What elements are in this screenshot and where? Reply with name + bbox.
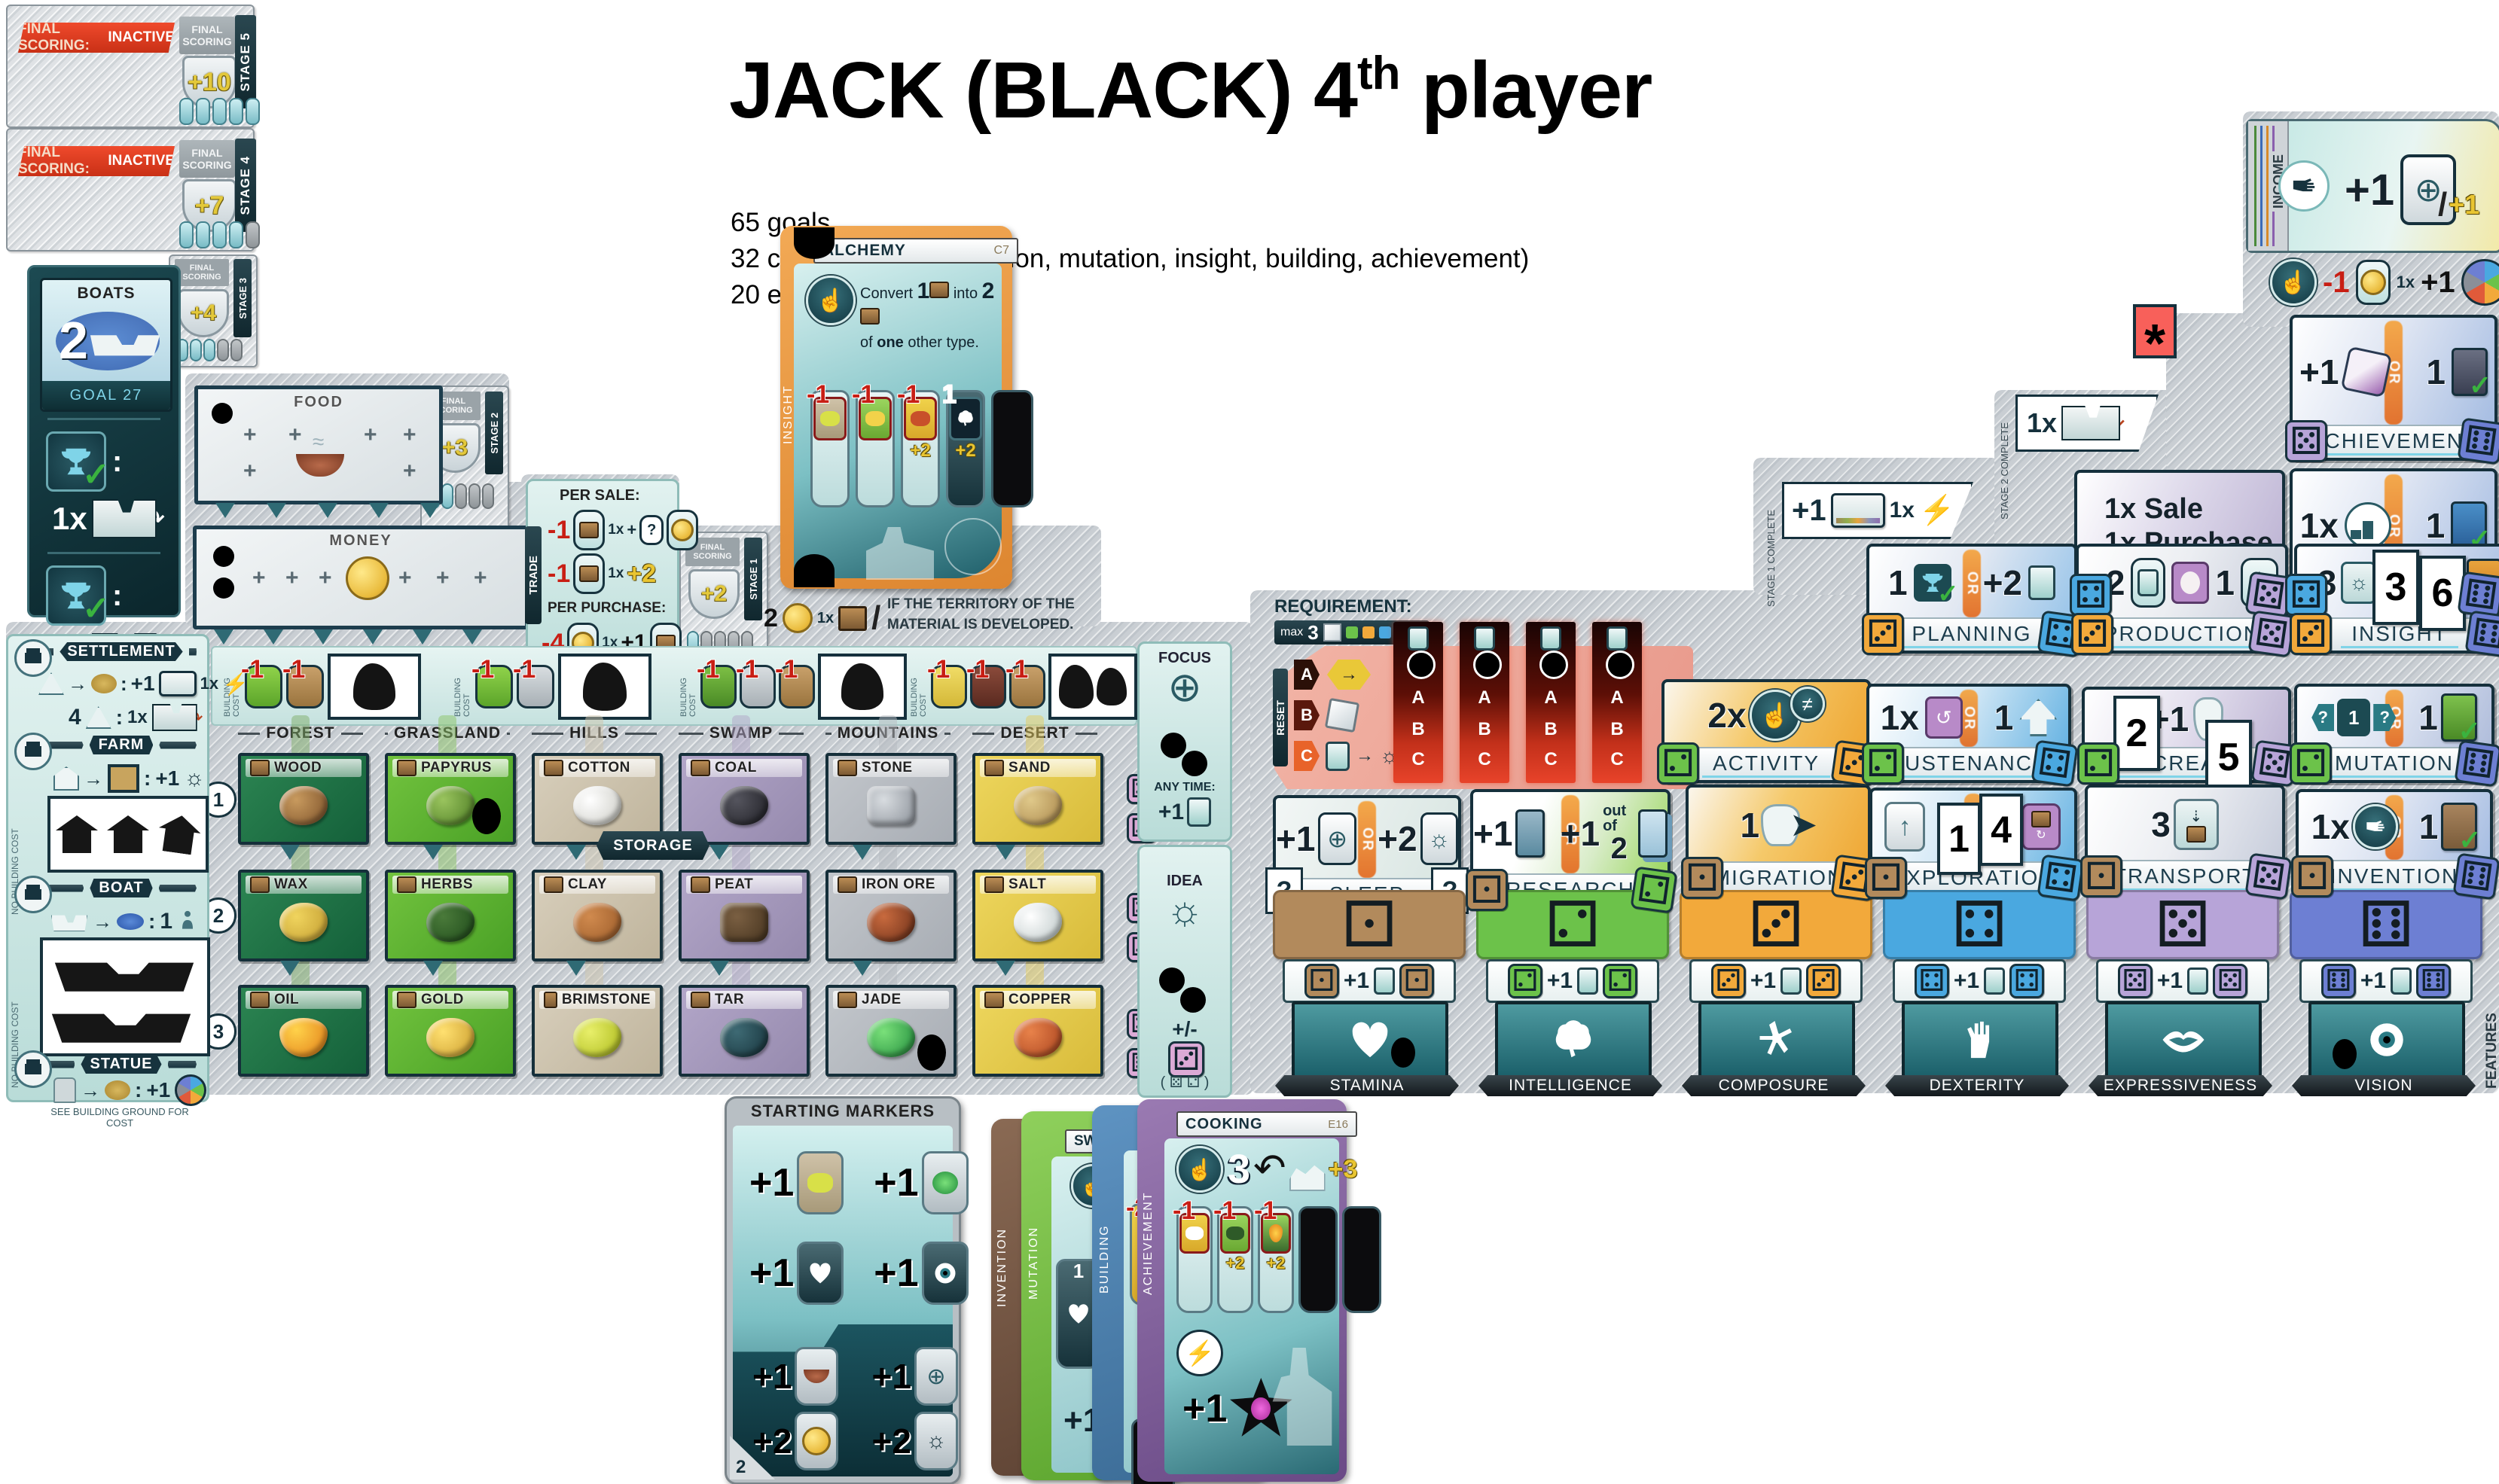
plus-slot: + bbox=[403, 459, 416, 484]
wire bbox=[2254, 126, 2256, 246]
focus-anytime-gain: +1 bbox=[1140, 797, 1230, 827]
die-swap-glyphs: ( ⚄ ⚁ ) bbox=[1140, 1073, 1230, 1092]
die-tan-1[interactable]: ⚀ bbox=[2080, 855, 2122, 897]
procreation-marker-box-2[interactable]: 2 bbox=[2113, 696, 2160, 771]
settlement-header: Settlement bbox=[46, 642, 197, 661]
arrow-icon: → bbox=[93, 910, 112, 934]
capsule-salt[interactable]: -1 bbox=[1176, 1206, 1213, 1313]
house-token-black bbox=[56, 815, 98, 853]
money-label: Money bbox=[197, 532, 525, 550]
bucket-icon bbox=[1326, 742, 1350, 771]
attr-plate-stamina[interactable]: ⚀ bbox=[1273, 890, 1466, 959]
card-alchemy[interactable]: Alchemy C7 Insight ☝ Convert 1 into 2 of… bbox=[780, 226, 1012, 589]
die-periwinkle-6[interactable]: ⚅ bbox=[2454, 739, 2499, 787]
storage-banner: Storage bbox=[597, 831, 709, 860]
resource-tile-iron-ore[interactable]: Iron Ore bbox=[825, 870, 957, 961]
chip-green bbox=[1346, 626, 1358, 638]
action-sustenance[interactable]: OR 1x ↺ 1 Sustenance ⚁ ⚃ bbox=[1866, 684, 2071, 783]
resource-tile-cotton[interactable]: Cotton bbox=[532, 753, 663, 845]
resource-illustration bbox=[867, 786, 915, 825]
trophy-check-icon: ✓ bbox=[46, 565, 106, 626]
requirement-row-a: A → bbox=[1294, 660, 1371, 690]
player-disc-black[interactable] bbox=[1606, 651, 1634, 679]
crate-icon bbox=[929, 282, 949, 298]
chip-blue bbox=[1379, 626, 1391, 638]
card-type-tab: Mutation bbox=[1027, 1172, 1041, 1300]
crate-icon bbox=[544, 992, 557, 1008]
capsule-empty-black[interactable] bbox=[991, 390, 1033, 507]
attr-plate-vision[interactable]: ⚅ bbox=[2290, 890, 2482, 959]
player-disc-black[interactable] bbox=[1407, 651, 1436, 679]
bucket-icon bbox=[2391, 967, 2412, 995]
card-check-icon: ✓ bbox=[2441, 693, 2477, 742]
resource-illustration bbox=[426, 1018, 474, 1057]
die-periwinkle-6[interactable]: ⚅ bbox=[2464, 610, 2499, 657]
plus-slot: + bbox=[364, 422, 377, 448]
house-token-black bbox=[107, 815, 149, 853]
focus-capsule: ⊕ bbox=[914, 1347, 958, 1406]
resource-tile-tar[interactable]: Tar bbox=[679, 985, 810, 1077]
pouch-icon: ↺ bbox=[1925, 696, 1963, 739]
card-check-icon: ✓ bbox=[2441, 803, 2477, 851]
building-pieces-box[interactable] bbox=[558, 654, 651, 720]
stage1-complete-tab: Stage 1 complete +1 1x ⚡ bbox=[1767, 482, 1973, 539]
idea-marker-black[interactable] bbox=[1180, 987, 1206, 1013]
exploration-marker-box-4[interactable]: 4 bbox=[1979, 794, 2023, 866]
stage3-points-shield: +4 bbox=[178, 289, 229, 337]
resource-illustration bbox=[1014, 786, 1062, 825]
die-periwinkle-6[interactable]: ⚅ bbox=[2452, 852, 2499, 900]
die-blue-4[interactable]: ⚃ bbox=[2285, 574, 2327, 616]
card-starting-markers[interactable]: Starting markers +1 +1 +1 +1 +1 +1⊕ +2 +… bbox=[725, 1096, 961, 1484]
question-chip: ? bbox=[2311, 704, 2334, 731]
pink-modifier-die: ⚂ bbox=[1168, 1041, 1204, 1077]
red-asterisk-marker[interactable]: * bbox=[2133, 304, 2177, 358]
divider bbox=[47, 552, 160, 554]
goal-card-boats[interactable]: Boats 2 Goal 27 bbox=[40, 278, 172, 412]
action-mutation[interactable]: OR ? 1 ? 1 ✓ Mutation ⚁ ⚅ bbox=[2294, 684, 2494, 783]
mini-die: ⚅ bbox=[2321, 964, 2356, 998]
crate-icon bbox=[544, 876, 563, 893]
mini-die: ⚃ bbox=[1915, 964, 1949, 998]
capsule-gold[interactable]: -1 bbox=[856, 390, 895, 507]
goal-panel: Boats 2 Goal 27 ✓ : 1x ↷ ✓ : bbox=[27, 265, 181, 617]
resource-tile-clay[interactable]: Clay bbox=[532, 870, 663, 961]
goal-card-footer: Goal 27 bbox=[42, 381, 170, 410]
arrow-icon: → bbox=[1356, 745, 1374, 766]
capsule-wax[interactable]: -1 bbox=[810, 390, 850, 507]
wax-blob bbox=[820, 411, 840, 426]
crate-icon bbox=[579, 565, 599, 582]
final-scoring-label: Final scoring bbox=[179, 17, 235, 54]
resource-tile-wax[interactable]: Wax bbox=[238, 870, 369, 961]
capsule-copper[interactable]: -1+2 bbox=[901, 390, 940, 507]
reset-tab[interactable]: Reset bbox=[1273, 669, 1288, 766]
requirement-column[interactable]: A B C bbox=[1592, 622, 1642, 783]
stage4-markers[interactable] bbox=[179, 221, 260, 248]
die-periwinkle-6[interactable]: ⚅ bbox=[2457, 417, 2499, 465]
stage1-complete-badge: +1 1x ⚡ bbox=[1782, 482, 1973, 539]
die-blue-4[interactable]: ⚃ bbox=[2037, 854, 2084, 901]
action-achievement[interactable]: OR +1 1 ✓ Achievement ⚄ ⚅ bbox=[2290, 315, 2497, 461]
energy-circle-icon: ⚡ bbox=[1176, 1330, 1223, 1376]
resource-illustration bbox=[426, 786, 474, 825]
out-of-label: out of2 bbox=[1603, 803, 1635, 864]
mini-die: ⚁ bbox=[1603, 964, 1637, 998]
die-blue-4[interactable]: ⚃ bbox=[2070, 574, 2112, 616]
wax-capsule bbox=[797, 1151, 844, 1214]
player-disc-black[interactable] bbox=[1391, 1038, 1415, 1068]
crate-icon bbox=[250, 992, 270, 1008]
attr-slot-dexterity[interactable]: ⚃ +1 ⚃ bbox=[1893, 959, 2066, 1003]
worker-icon bbox=[177, 910, 198, 934]
action-transport[interactable]: 3 ⇣ Transport ⚀ ⚄ bbox=[2085, 785, 2285, 896]
bucket-icon bbox=[1984, 967, 2005, 995]
action-activity[interactable]: 2x ☝ ≠ Activity ⚁ ⚂ bbox=[1661, 679, 1871, 783]
resource-tile-salt[interactable]: Salt bbox=[972, 870, 1103, 961]
crate-icon bbox=[984, 760, 1004, 776]
focus-marker-black[interactable] bbox=[1182, 751, 1207, 776]
capsule-oil[interactable]: -1+2 bbox=[1258, 1206, 1294, 1313]
building-cost-group: Building cost -1 -1 bbox=[453, 654, 651, 720]
resource-illustration bbox=[279, 1018, 328, 1057]
income-card-icon bbox=[1831, 493, 1885, 528]
cube-icon bbox=[1325, 698, 1359, 733]
goal-card-title: Boats bbox=[42, 285, 170, 303]
coin-icon bbox=[783, 603, 813, 633]
stage-3-tile[interactable]: Final scoring +4 Stage 3 bbox=[169, 254, 258, 367]
boat-flip-icon bbox=[92, 499, 157, 538]
divider bbox=[47, 418, 160, 420]
food-label: Food bbox=[198, 394, 439, 411]
card-cooking[interactable]: Cooking E16 Achievement ☝ 3 ↶ +3 -1 -1+2… bbox=[1137, 1099, 1347, 1482]
mini-stripe bbox=[1836, 518, 1880, 523]
focus-marker-black[interactable] bbox=[1161, 733, 1186, 758]
plus-slot: + bbox=[403, 422, 416, 448]
card-effect-text: Convert 1 into 2 of one other type. bbox=[860, 274, 1003, 354]
mini-die: ⚄ bbox=[2213, 964, 2247, 998]
idea-shield-icon: ☼ bbox=[1420, 812, 1458, 865]
goal-reward-gain: 1x ↷ bbox=[52, 499, 165, 538]
resource-tile-coal[interactable]: Coal bbox=[679, 753, 810, 845]
mini-die: ⚁ bbox=[1508, 964, 1542, 998]
title-ordinal: th bbox=[1357, 47, 1400, 99]
building-pieces-box[interactable] bbox=[1048, 654, 1137, 720]
crate-icon bbox=[838, 606, 867, 631]
brick-icon bbox=[14, 1050, 52, 1088]
wire bbox=[2260, 126, 2263, 246]
energy-icon: ⚡ bbox=[222, 672, 249, 696]
card-type-tab: Building bbox=[1098, 1166, 1112, 1294]
attr-name-expressiveness: Expressiveness bbox=[2089, 1075, 2272, 1096]
attr-name-stamina: Stamina bbox=[1275, 1075, 1459, 1096]
procreation-marker-box-5[interactable]: 5 bbox=[2205, 720, 2252, 795]
crate-icon bbox=[838, 876, 857, 893]
attr-plate-expressiveness[interactable]: ⚄ bbox=[2086, 890, 2279, 959]
building-pieces-box[interactable] bbox=[328, 654, 421, 720]
marker-row: +1 +1 bbox=[749, 1151, 969, 1214]
focus-icon: ⊕ bbox=[1140, 667, 1230, 708]
die-green-2[interactable]: ⚁ bbox=[1630, 866, 1677, 913]
die-lavender-5[interactable]: ⚄ bbox=[2244, 852, 2292, 900]
insight-marker-box-6[interactable]: 6 bbox=[2419, 556, 2466, 631]
money-marker-black[interactable] bbox=[213, 546, 234, 567]
boat-flip-icon bbox=[2061, 406, 2120, 440]
capsule-brain[interactable]: 1+2 bbox=[946, 390, 985, 507]
brick-icon bbox=[14, 733, 52, 770]
crate-icon bbox=[691, 876, 710, 893]
boat-token-black bbox=[52, 951, 197, 993]
stage3-markers[interactable] bbox=[176, 339, 243, 361]
attr-plate-dexterity[interactable]: ⚃ bbox=[1883, 890, 2076, 959]
idea-marker-black[interactable] bbox=[1159, 967, 1185, 993]
row-arrows bbox=[280, 961, 1015, 976]
die-green-2[interactable]: ⚁ bbox=[1862, 742, 1904, 785]
resource-tile-stone[interactable]: Stone bbox=[825, 753, 957, 845]
crate-icon bbox=[544, 760, 563, 776]
stage1-points-shield: +2 bbox=[688, 569, 740, 619]
plus-slot: + bbox=[398, 565, 412, 591]
gold-ground-icon bbox=[91, 674, 117, 693]
bucket-icon bbox=[2187, 967, 2208, 995]
attr-name-dexterity: Dexterity bbox=[1885, 1075, 2069, 1096]
cube-icon bbox=[1323, 623, 1341, 641]
food-track: Food ++++ ++ ≈ bbox=[194, 385, 443, 504]
crate-icon bbox=[250, 876, 270, 893]
arrow-icon: ➤ bbox=[1791, 808, 1817, 843]
boat-token-black bbox=[49, 1002, 194, 1044]
die-green-2[interactable]: ⚁ bbox=[2077, 742, 2119, 785]
player-disc-black[interactable] bbox=[2333, 1039, 2357, 1069]
crate-icon bbox=[691, 760, 710, 776]
resource-tile-wood[interactable]: Wood bbox=[238, 753, 369, 845]
starting-markers-title: Starting markers bbox=[727, 1099, 959, 1124]
die-tan-1[interactable]: ⚀ bbox=[1865, 857, 1907, 899]
bucket-icon bbox=[1606, 626, 1628, 651]
income-color-stripe bbox=[2287, 239, 2499, 251]
settlement-row-2: 4 : 1x ↷ bbox=[69, 704, 203, 731]
bucket-icon bbox=[1408, 626, 1429, 651]
attr-slot-stamina[interactable]: ⚀ +1 ⚀ bbox=[1283, 959, 1456, 1003]
any-time-label: Any time: bbox=[1140, 781, 1230, 794]
black-piece bbox=[841, 663, 883, 710]
resource-tile-brimstone[interactable]: Brimstone bbox=[532, 985, 663, 1077]
attr-slot-intelligence[interactable]: ⚁ +1 ⚁ bbox=[1486, 959, 1659, 1003]
resource-illustration bbox=[1014, 903, 1062, 942]
wire bbox=[2266, 126, 2269, 246]
building-cost-label: Building cost bbox=[910, 657, 928, 717]
coin-icon bbox=[346, 556, 389, 600]
jade-capsule bbox=[922, 1151, 969, 1214]
building-cost-label: Building cost bbox=[453, 657, 471, 717]
crate-move-icon: ⇣ bbox=[2174, 799, 2219, 850]
field-icon bbox=[108, 764, 139, 793]
die-lavender-5[interactable]: ⚄ bbox=[2285, 420, 2327, 462]
corner-dot bbox=[794, 227, 835, 259]
gold-blob bbox=[865, 411, 885, 426]
die-tan-1[interactable]: ⚀ bbox=[2291, 855, 2333, 897]
attr-organ-dexterity bbox=[1902, 1001, 2058, 1078]
die-tan-1[interactable]: ⚀ bbox=[1466, 869, 1508, 911]
stage-4-tile[interactable]: Final scoring:INACTIVE Final scoring +7 … bbox=[6, 128, 255, 251]
stage-5-tile[interactable]: Final scoring:INACTIVE Final scoring +10… bbox=[6, 5, 255, 128]
attr-slot-vision[interactable]: ⚅ +1 ⚅ bbox=[2299, 959, 2473, 1003]
die-orange-3[interactable]: ⚂ bbox=[2071, 613, 2113, 655]
goal-reward-row: ✓ : bbox=[46, 431, 122, 492]
player-disc-black[interactable] bbox=[472, 798, 501, 834]
card-header: Alchemy C7 bbox=[813, 238, 1018, 264]
settlement-row-1: → : +1 1x ⚡ bbox=[38, 671, 249, 696]
card-check-icon: ✓ bbox=[2451, 501, 2487, 550]
bucket-icon bbox=[2028, 565, 2055, 600]
resource-tile-oil[interactable]: Oil bbox=[238, 985, 369, 1077]
final-scoring-label: Final scoring bbox=[179, 140, 235, 178]
page-title: JACK (BLACK) 4th player bbox=[729, 45, 1652, 136]
salt-blob bbox=[1185, 1227, 1204, 1240]
card-icon bbox=[159, 671, 197, 696]
activation-icon: ☝ bbox=[1176, 1146, 1223, 1193]
action-invention[interactable]: OR 1x 1 ✓ Invention ⚀ ⚅ bbox=[2296, 789, 2493, 896]
die-orange-3[interactable]: ⚂ bbox=[2290, 613, 2332, 655]
bucket-icon bbox=[1577, 967, 1598, 995]
boat-tokens-box[interactable] bbox=[40, 937, 210, 1056]
die-orange-3[interactable]: ⚂ bbox=[1862, 613, 1904, 655]
activation-icon: ☝ bbox=[806, 276, 856, 325]
activation-icon: ☝ bbox=[2270, 259, 2317, 306]
capsule-empty-black[interactable] bbox=[1298, 1206, 1338, 1313]
attr-slot-composure[interactable]: ⚂ +1 ⚂ bbox=[1689, 959, 1863, 1003]
stage5-markers[interactable] bbox=[179, 98, 260, 125]
attr-name-vision: Vision bbox=[2292, 1075, 2476, 1096]
resource-illustration bbox=[573, 903, 621, 942]
crate-icon bbox=[397, 760, 416, 776]
attr-organ-expressiveness bbox=[2105, 1001, 2262, 1078]
plus-slot: + bbox=[243, 422, 257, 448]
plus-slot: + bbox=[288, 422, 302, 448]
stage2-complete-badge: 1x ↷ bbox=[2015, 395, 2159, 452]
focus-panel: Focus ⊕ Any time: +1 bbox=[1137, 641, 1232, 842]
magenta-face bbox=[1251, 1397, 1271, 1420]
plus-slot: + bbox=[243, 459, 257, 484]
mini-die: ⚂ bbox=[1806, 964, 1841, 998]
action-migration[interactable]: 1 ➤ Migration ⚀ ⚂ bbox=[1686, 785, 1871, 897]
building-pieces-box[interactable] bbox=[818, 654, 907, 720]
money-marker-black[interactable] bbox=[213, 577, 234, 599]
resource-tile-sand[interactable]: Sand bbox=[972, 753, 1103, 845]
resource-tile-jade[interactable]: Jade bbox=[825, 985, 957, 1077]
die-lavender-5[interactable]: ⚄ bbox=[2247, 610, 2295, 657]
player-disc-black[interactable] bbox=[1473, 651, 1502, 679]
gold-ground-icon bbox=[105, 1080, 130, 1100]
final-scoring-inactive-banner: Final scoring:INACTIVE bbox=[18, 146, 175, 176]
crate-icon bbox=[579, 522, 599, 538]
capsule-herbs[interactable]: -1+2 bbox=[1217, 1206, 1253, 1313]
coin-capsule bbox=[795, 1412, 838, 1470]
statue-note: See building ground for cost bbox=[37, 1106, 203, 1129]
crate-icon bbox=[860, 308, 880, 325]
farm-row: → : +1 ☼ bbox=[53, 764, 205, 793]
food-marker-black[interactable] bbox=[212, 403, 233, 424]
bucket-icon bbox=[1374, 967, 1395, 995]
attr-organ-intelligence bbox=[1495, 1001, 1652, 1078]
trade-vertical-label: Trade bbox=[525, 526, 542, 624]
stage1-tab: Stage 1 bbox=[744, 538, 762, 620]
mini-die: ⚂ bbox=[1711, 964, 1746, 998]
die-tan-1[interactable]: ⚀ bbox=[1681, 857, 1723, 899]
water-icon bbox=[117, 913, 144, 930]
die-blue-4[interactable]: ⚃ bbox=[2031, 739, 2078, 787]
tent-icon bbox=[86, 706, 111, 729]
die-green-2[interactable]: ⚁ bbox=[1657, 742, 1699, 785]
focus-shield-icon: ⊕ bbox=[1318, 812, 1356, 865]
turn-arrow-icon: → bbox=[1327, 660, 1371, 690]
brick-icon bbox=[14, 876, 52, 913]
bucket-icon bbox=[1780, 967, 1802, 995]
crate-icon bbox=[691, 992, 710, 1008]
plus-slot: + bbox=[252, 565, 266, 591]
build-icon bbox=[2345, 502, 2391, 549]
action-planning[interactable]: OR 1 ✓ +2 Planning ⚂ ⚃ bbox=[1866, 544, 2077, 654]
stage3-tab: Stage 3 bbox=[233, 259, 252, 337]
exploration-marker-box-1[interactable]: 1 bbox=[1937, 803, 1981, 875]
requirement-column[interactable]: A B C bbox=[1526, 622, 1576, 783]
black-piece bbox=[583, 663, 627, 711]
boat-header: Boat bbox=[46, 879, 197, 897]
attr-slot-expressiveness[interactable]: ⚄ +1 ⚄ bbox=[2096, 959, 2269, 1003]
requirement-column[interactable]: A B C bbox=[1460, 622, 1509, 783]
player-disc-black[interactable] bbox=[1539, 651, 1568, 679]
idea-icon: ☼ bbox=[184, 766, 205, 791]
farm-houses-box[interactable] bbox=[47, 796, 209, 873]
attr-name-composure: Composure bbox=[1682, 1075, 1866, 1096]
color-wheel-icon bbox=[2461, 259, 2499, 306]
boat-icon-white bbox=[50, 911, 88, 932]
die-green-2[interactable]: ⚁ bbox=[2290, 742, 2332, 785]
capsule-empty-black[interactable] bbox=[1342, 1206, 1381, 1313]
bucket-icon bbox=[1474, 626, 1495, 651]
insight-marker-box-3[interactable]: 3 bbox=[2372, 550, 2419, 625]
farm-header: Farm bbox=[46, 736, 197, 754]
resource-tile-copper[interactable]: Copper bbox=[972, 985, 1103, 1077]
resource-illustration bbox=[426, 903, 474, 942]
oil-drop bbox=[1269, 1224, 1283, 1242]
attr-plate-composure[interactable]: ⚂ bbox=[1680, 890, 1872, 959]
crate-icon bbox=[838, 760, 857, 776]
alchemy-sigil bbox=[944, 518, 1002, 575]
features-label: Features bbox=[2484, 968, 2499, 1089]
black-piece bbox=[1097, 668, 1127, 705]
resource-illustration bbox=[279, 786, 328, 825]
herbs-blob bbox=[1226, 1227, 1244, 1240]
final-scoring-label: Final scoring bbox=[175, 259, 229, 286]
resource-tile-papyrus[interactable]: Papyrus bbox=[385, 753, 516, 845]
card-type-tab: Insight bbox=[780, 316, 797, 444]
corner-dot bbox=[794, 554, 835, 587]
resource-tile-peat[interactable]: Peat bbox=[679, 870, 810, 961]
plus-slot: + bbox=[436, 565, 450, 591]
crate-icon bbox=[984, 992, 1004, 1008]
marker-row: +1 +1 bbox=[749, 1242, 969, 1305]
money-track: Money +++ +++ bbox=[193, 526, 529, 629]
income-hand-icon bbox=[2278, 160, 2330, 212]
piece-up-icon bbox=[2019, 699, 2057, 736]
requirement-column[interactable]: A B C bbox=[1393, 622, 1443, 783]
resource-tile-gold[interactable]: Gold bbox=[385, 985, 516, 1077]
resource-tile-herbs[interactable]: Herbs bbox=[385, 870, 516, 961]
player-disc-black[interactable] bbox=[917, 1035, 946, 1071]
bucket-icon bbox=[1187, 797, 1211, 827]
black-piece bbox=[353, 663, 395, 710]
